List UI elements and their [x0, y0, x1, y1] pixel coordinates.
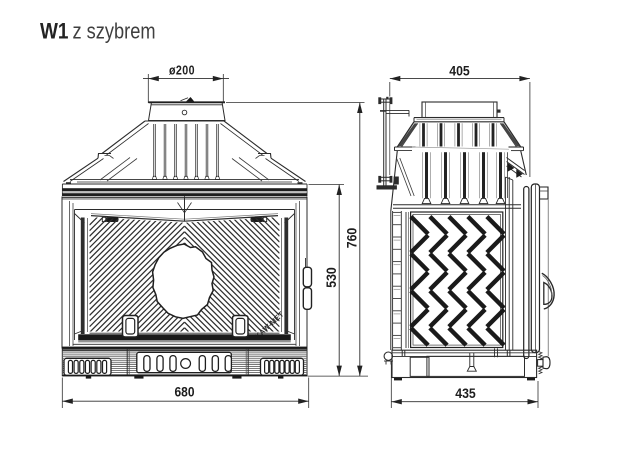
- svg-text:W1: W1: [40, 19, 69, 44]
- svg-text:435: 435: [455, 385, 476, 401]
- svg-text:z szybrem: z szybrem: [73, 19, 156, 44]
- svg-text:760: 760: [344, 228, 360, 249]
- svg-text:680: 680: [175, 383, 195, 399]
- svg-text:530: 530: [323, 267, 339, 288]
- svg-text:405: 405: [449, 63, 470, 79]
- svg-text:ø200: ø200: [169, 64, 195, 78]
